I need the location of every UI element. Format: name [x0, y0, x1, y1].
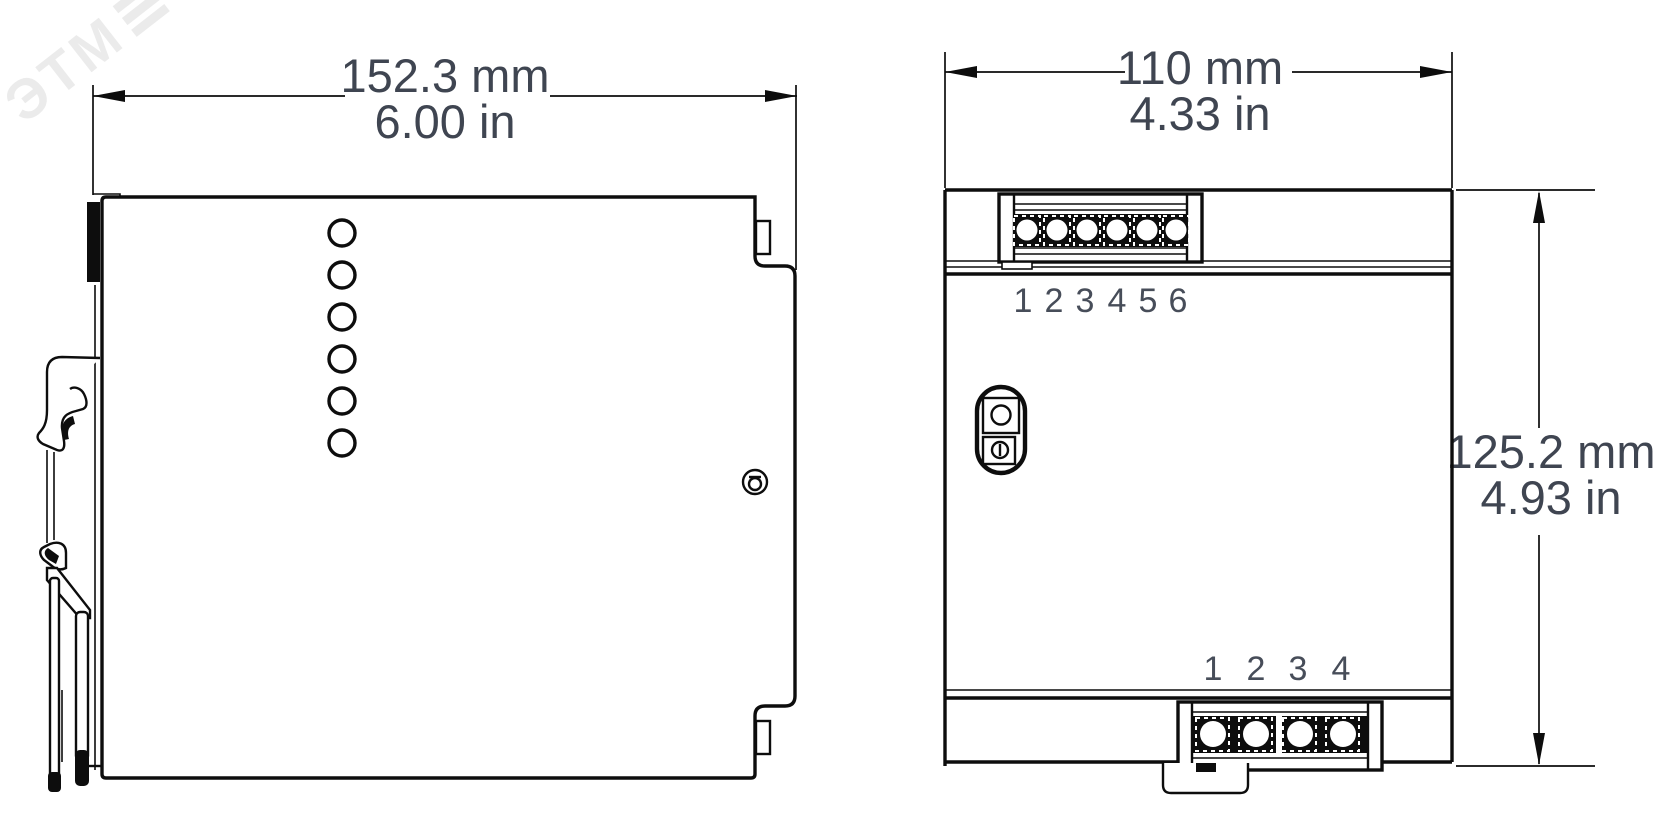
vent-hole [329, 262, 355, 288]
arrow-down-icon [1533, 733, 1545, 765]
terminal-number: 4 [1332, 650, 1351, 688]
terminal-number: 3 [1289, 650, 1308, 688]
terminal-screw [1166, 220, 1187, 241]
vent-hole [329, 304, 355, 330]
adjustment-switch [977, 387, 1025, 473]
clip-mid-plate [47, 450, 54, 543]
top-terminal-numbers: 1 2 3 4 5 6 [1014, 282, 1188, 320]
terminal-screw [1243, 721, 1269, 747]
terminal-screw [1330, 721, 1356, 747]
terminal-tab [1002, 262, 1032, 269]
terminal-screw [1017, 220, 1038, 241]
terminal-number: 3 [1076, 282, 1095, 320]
clip-right-foot [75, 750, 89, 786]
terminal-screw [1287, 721, 1313, 747]
arrow-right-icon [765, 90, 797, 102]
front-view-width-dimension: 110 mm 4.33 in [945, 41, 1452, 188]
terminal-screw [1077, 220, 1098, 241]
din-rail-clip [38, 357, 100, 792]
clip-left-leg [50, 578, 59, 778]
terminal-screw [1047, 220, 1068, 241]
terminal-divider [1276, 716, 1282, 753]
vent-hole [329, 430, 355, 456]
tab-notch [1196, 763, 1216, 772]
terminal-number: 2 [1045, 282, 1064, 320]
arrow-right-icon [1420, 66, 1452, 78]
side-view: 152.3 mm 6.00 in [38, 49, 797, 792]
front-view: 110 mm 4.33 in 125.2 mm 4.93 in [945, 41, 1655, 793]
vent-hole [329, 388, 355, 414]
arrow-left-icon [945, 66, 977, 78]
technical-drawing-svg: 152.3 mm 6.00 in [0, 0, 1656, 821]
side-top-latch [756, 221, 770, 254]
bottom-terminal-numbers: 1 2 3 4 [1204, 650, 1351, 688]
side-body-outline [102, 197, 795, 778]
terminal-screw [1200, 721, 1226, 747]
drawing-canvas: ЭТМ 152.3 mm 6.00 in [0, 0, 1656, 821]
side-bottom-latch [756, 721, 770, 754]
vent-hole [329, 346, 355, 372]
clip-upper-claw [38, 357, 100, 451]
clip-left-foot [48, 772, 61, 792]
front-view-height-dimension: 125.2 mm 4.93 in [1447, 190, 1656, 766]
terminal-number: 5 [1139, 282, 1158, 320]
terminal-number: 6 [1169, 282, 1188, 320]
terminal-screw [1137, 220, 1158, 241]
clip-right-leg [76, 612, 88, 760]
terminal-number: 1 [1014, 282, 1033, 320]
top-terminal-block [999, 194, 1202, 269]
vent-hole [329, 220, 355, 246]
height-in-label: 4.93 in [1480, 471, 1621, 524]
terminal-number: 4 [1108, 282, 1127, 320]
side-screw-icon [743, 470, 767, 494]
terminal-screw [1107, 220, 1128, 241]
side-mount-flange [87, 202, 100, 282]
width-in-label: 4.33 in [1129, 87, 1270, 140]
din-release-tab [1163, 763, 1248, 793]
width-in-label: 6.00 in [374, 95, 515, 148]
terminal-number: 1 [1204, 650, 1223, 688]
bottom-terminal-block [1178, 702, 1382, 770]
terminal-number: 2 [1247, 650, 1266, 688]
arrow-up-icon [1533, 191, 1545, 223]
arrow-left-icon [93, 90, 125, 102]
switch-hole [992, 406, 1011, 425]
